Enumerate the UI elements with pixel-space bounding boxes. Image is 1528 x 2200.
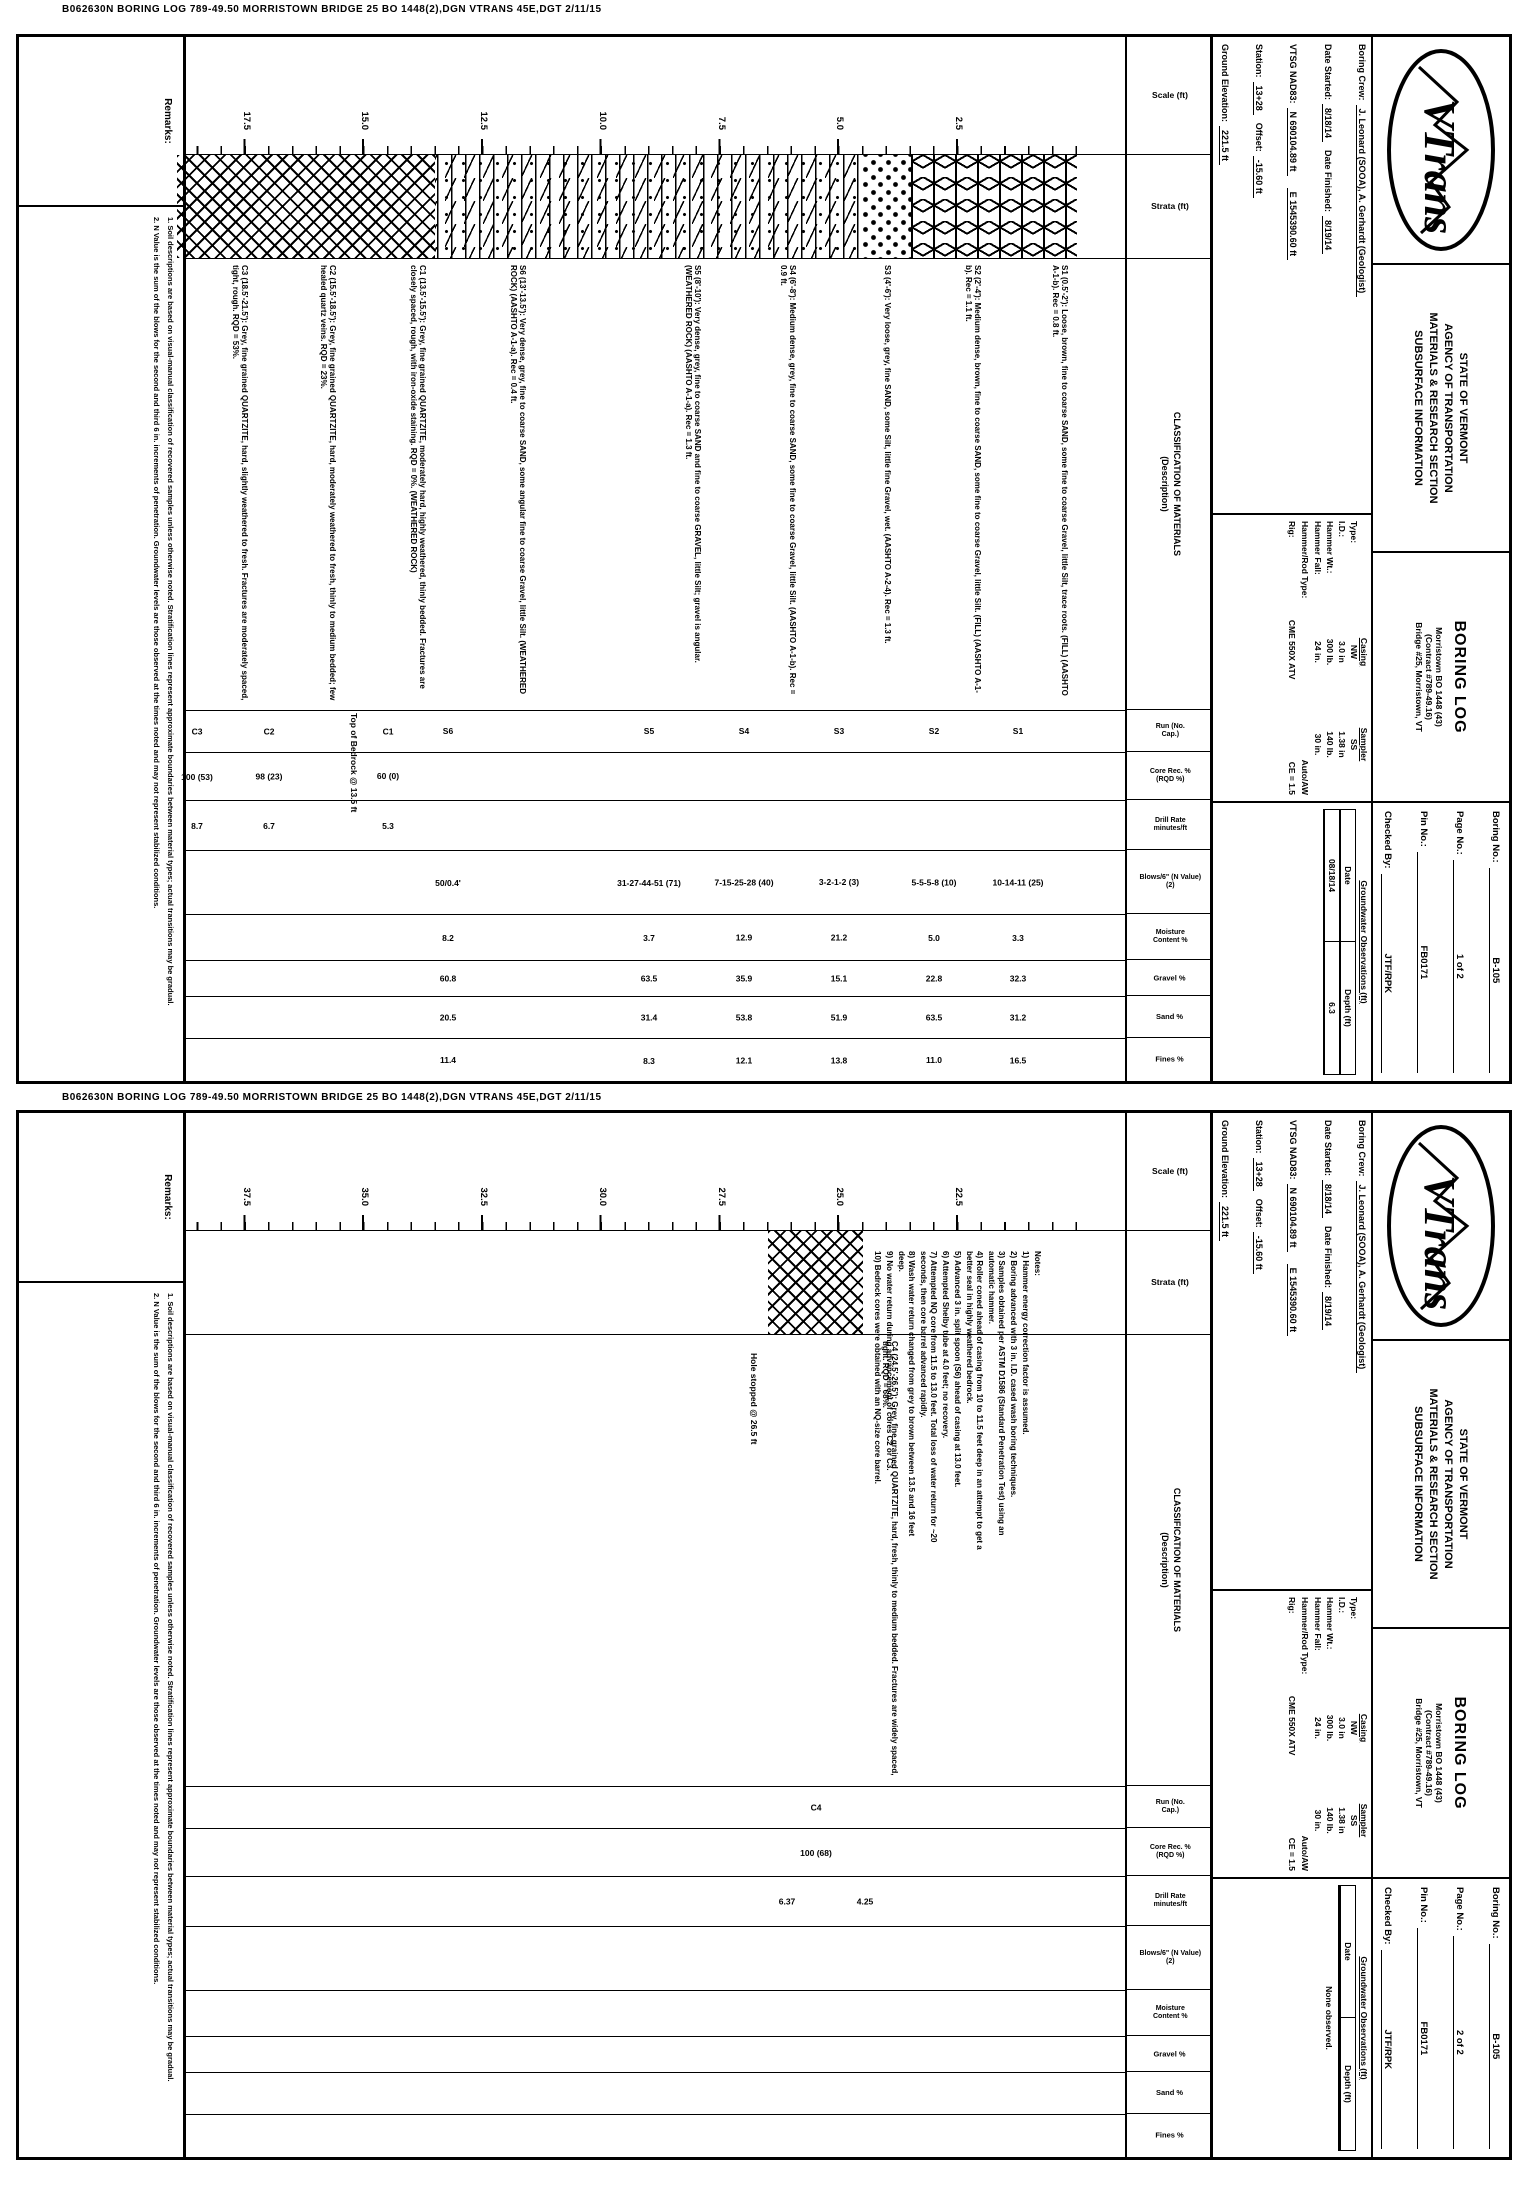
northing-value: N 690104.89 ft (1288, 108, 1299, 176)
date-finished-label: Date Finished: (1322, 1226, 1333, 1288)
cs-sampler-value: 30 in. (1313, 697, 1323, 792)
scale-column: 2.55.07.510.012.515.017.5 (183, 37, 1127, 155)
agency-line: SUBSURFACE INFORMATION (1413, 1406, 1425, 1562)
depth-label: 5.0 (834, 117, 845, 130)
fines-value: 13.8 (831, 1055, 848, 1065)
groundwater-block: Groundwater Observations (ft) Date Depth… (1213, 803, 1373, 1081)
project-line: (Contract #789-49.16) (1424, 1698, 1434, 1808)
boring-fields: Boring Crew:J. Leonard (SOOA), A. Gerhar… (1213, 37, 1373, 515)
title-row: VTrans STATE OF VERMONTAGENCY OF TRANSPO… (1371, 1113, 1509, 2157)
classification-header-line2: (Description) (1158, 412, 1170, 556)
boring-log-title: BORING LOG (1450, 1696, 1468, 1809)
moisture-column (183, 1991, 1127, 2037)
hammer-rod-value: Auto/AW (1300, 760, 1310, 795)
cs-row-label: Hammer Wt.: (1325, 521, 1335, 607)
boring-fields: Boring Crew:J. Leonard (SOOA), A. Gerhar… (1213, 1113, 1373, 1591)
sand-column: 31.263.551.953.831.420.5 (183, 997, 1127, 1039)
sheet-border: VTrans STATE OF VERMONTAGENCY OF TRANSPO… (16, 34, 1512, 1084)
boring-no-label: Boring No.: (1489, 1887, 1501, 1939)
note-line: 10) Bedrock cores were obtained with an … (872, 1251, 882, 1553)
station-value: 13+28 (1253, 1158, 1264, 1191)
depth-label: 12.5 (478, 112, 489, 131)
remarks-label: Remarks: (19, 37, 183, 207)
crew-label: Boring Crew: (1356, 44, 1367, 101)
gravel-column: 32.322.815.135.963.560.8 (183, 961, 1127, 997)
gravel-value: 63.5 (641, 973, 658, 983)
cs-casing-value: 24 in. (1313, 607, 1323, 697)
boring-log-title-block: BORING LOG Morristown BO 1448 (43)(Contr… (1373, 553, 1509, 803)
moisture-value: 21.2 (831, 932, 848, 942)
moisture-column-header: Moisture Content % (1148, 929, 1193, 944)
moisture-column-header: Moisture Content % (1148, 2005, 1193, 2020)
rig-value: CME 550X ATV (1287, 620, 1297, 680)
general-notes: Notes:1) Hammer energy correction factor… (870, 1251, 1042, 1553)
blows-column (183, 1927, 1127, 1991)
fines-column: 16.511.013.812.18.311.4 (183, 1039, 1127, 1082)
sheet-border: VTrans STATE OF VERMONTAGENCY OF TRANSPO… (16, 1110, 1512, 2160)
run-value: S3 (834, 727, 844, 737)
date-finished-value: 8/19/14 (1322, 1292, 1333, 1330)
note-line: 8) Wash water return changed from grey t… (896, 1251, 916, 1553)
hammer-rod-value: Auto/AW (1300, 1836, 1310, 1871)
boring-log-sheet-1: VTrans STATE OF VERMONTAGENCY OF TRANSPO… (16, 34, 1512, 1084)
project-line: Morristown BO 1448 (43) (1434, 1698, 1444, 1808)
agency-line: AGENCY OF TRANSPORTATION (1443, 323, 1455, 492)
cs-row-label: I.D.: (1337, 1597, 1347, 1683)
agency-line: MATERIALS & RESEARCH SECTION (1428, 312, 1440, 503)
depth-label: 10.0 (597, 112, 608, 131)
cs-casing-value: 3.0 in (1337, 607, 1347, 697)
ground-elevation-label: Ground Elevation: (1219, 44, 1230, 122)
cs-row-label: Type: (1349, 521, 1359, 607)
cs-row-label: Hammer Fall: (1313, 521, 1323, 607)
agency-line: MATERIALS & RESEARCH SECTION (1428, 1388, 1440, 1579)
note-line: 1) Hammer energy correction factor is as… (1020, 1251, 1030, 1553)
run-column: C4 (183, 1787, 1127, 1829)
plot-stamp-line-2: B062630N BORING LOG 789-49.50 MORRISTOWN… (62, 1092, 602, 1103)
page-no-label: Page No.: (1453, 1887, 1465, 1931)
drillrate-value: 8.7 (191, 820, 203, 830)
cs-casing-value: 300 lb. (1325, 607, 1335, 697)
material-description: S3 (4'-6'): Very loose, grey, fine SAND,… (883, 265, 892, 701)
gravel-column (183, 2037, 1127, 2073)
sand-value: 53.8 (736, 1012, 753, 1022)
sampler-header: Sampler (1359, 697, 1369, 792)
date-started-label: Date Started: (1322, 44, 1333, 100)
run-value: C4 (811, 1803, 822, 1813)
page-no-value: 2 of 2 (1453, 1936, 1465, 2149)
run-value: C1 (383, 727, 394, 737)
fields-row: Boring Crew:J. Leonard (SOOA), A. Gerhar… (1210, 37, 1373, 1081)
cs-row-label: Hammer Wt.: (1325, 1597, 1335, 1683)
depth-annotation: Hole stopped @ 26.5 ft (749, 1353, 759, 1444)
fines-column (183, 2115, 1127, 2158)
pin-no-label: Pin No.: (1417, 1887, 1429, 1923)
cs-casing-value: 24 in. (1313, 1683, 1323, 1773)
run-column-header: Run (No. Cap.) (1150, 723, 1191, 738)
offset-label: Offset: (1253, 123, 1264, 152)
boring-no-value: B-105 (1489, 1944, 1501, 2149)
casing-header: Casing (1359, 607, 1369, 697)
boring-no-value: B-105 (1489, 868, 1501, 1073)
groundwater-block: Groundwater Observations (ft) Date Depth… (1213, 1879, 1373, 2157)
remarks-line: 2. N Value is the sum of the blows for t… (151, 217, 161, 1071)
fines-value: 16.5 (1010, 1055, 1027, 1065)
depth-label: 17.5 (241, 112, 252, 131)
boring-log-sheet-2: VTrans STATE OF VERMONTAGENCY OF TRANSPO… (16, 1110, 1512, 2160)
station-label: Station: (1253, 44, 1264, 78)
boring-info-block: Boring No.:B-105 Page No.:2 of 2 Pin No.… (1373, 1879, 1509, 2157)
moisture-column: 3.35.021.212.93.78.2 (183, 915, 1127, 961)
run-value: C3 (192, 727, 203, 737)
rig-label: Rig: (1287, 521, 1297, 538)
moisture-value: 5.0 (928, 932, 940, 942)
fines-column-header: Fines % (1156, 2131, 1184, 2140)
material-description: C1 (13.5'-15.5'): Grey, fine grained QUA… (409, 265, 427, 701)
svg-text:VTrans: VTrans (1415, 99, 1464, 234)
agency-block: STATE OF VERMONTAGENCY OF TRANSPORTATION… (1373, 1341, 1509, 1629)
note-line: 2) Boring advanced with 3 in. I.D. cased… (1008, 1251, 1018, 1553)
moisture-value: 12.9 (736, 932, 753, 942)
scale-column: 22.525.027.530.032.535.037.5 (183, 1113, 1127, 1231)
blows-value: 7-15-25-28 (40) (714, 878, 773, 888)
depth-label: 2.5 (953, 117, 964, 130)
remarks-notes: 1. Soil descriptions are based on visual… (19, 1283, 183, 2157)
project-lines: Morristown BO 1448 (43)(Contract #789-49… (1414, 1698, 1444, 1808)
easting-value: E 1545390.60 ft (1288, 1264, 1299, 1337)
project-line: Bridge #25, Morristown, VT (1414, 622, 1424, 732)
blows-value: 31-27-44-51 (71) (617, 878, 681, 888)
strata-pattern-zone (435, 155, 863, 258)
fines-value: 8.3 (643, 1055, 655, 1065)
casing-sampler-rows: Type:NWSSI.D.:3.0 in1.38 inHammer Wt.:30… (1313, 1597, 1359, 1871)
page-no-label: Page No.: (1453, 811, 1465, 855)
cs-casing-value: NW (1349, 1683, 1359, 1773)
ruler-major-ticks (183, 139, 958, 154)
date-started-value: 8/18/14 (1322, 104, 1333, 142)
corerec-value: 98 (23) (256, 772, 283, 782)
gw-depth-value: 6.3 (1324, 942, 1339, 1074)
gravel-column-header: Gravel % (1154, 973, 1186, 982)
vtrans-logo: VTrans (1373, 1113, 1509, 1341)
log-body: 2.55.07.510.012.515.017.5 S1 (0.5'-2'): … (183, 37, 1127, 1081)
gravel-column-header: Gravel % (1154, 2049, 1186, 2058)
vtrans-logo-icon: VTrans (1385, 47, 1497, 253)
gw-date-value: 08/18/14 (1324, 810, 1339, 942)
agency-line: STATE OF VERMONT (1458, 353, 1470, 464)
fines-value: 11.0 (926, 1055, 942, 1065)
cs-row-label: I.D.: (1337, 521, 1347, 607)
vtrans-logo-icon: VTrans (1385, 1123, 1497, 1329)
sand-column-header: Sand % (1156, 2088, 1183, 2097)
depth-label: 27.5 (716, 1188, 727, 1207)
drillrate-column-header: Drill Rate minutes/ft (1146, 817, 1195, 832)
gw-note: None observed. (1324, 1885, 1334, 2151)
boring-log-title-block: BORING LOG Morristown BO 1448 (43)(Contr… (1373, 1629, 1509, 1879)
grid-label: VTSG NAD83: (1288, 44, 1299, 104)
remarks-line: 1. Soil descriptions are based on visual… (165, 217, 175, 1071)
gravel-value: 60.8 (440, 973, 457, 983)
material-description: S1 (0.5'-2'): Loose, brown, fine to coar… (1051, 265, 1069, 701)
note-line: 5) Advanced 3 in. split spoon (S6) ahead… (952, 1251, 962, 1553)
date-finished-label: Date Finished: (1322, 150, 1333, 212)
remarks-footer: Remarks: 1. Soil descriptions are based … (19, 37, 186, 1081)
casing-sampler-block: CasingSampler Type:NWSSI.D.:3.0 in1.38 i… (1213, 1591, 1373, 1879)
northing-value: N 690104.89 ft (1288, 1184, 1299, 1252)
ground-elevation-label: Ground Elevation: (1219, 1120, 1230, 1198)
material-description: C3 (18.5'-21.5'): Grey, fine grained QUA… (231, 265, 249, 701)
depth-label: 35.0 (359, 1188, 370, 1207)
strata-pattern-zone (768, 1231, 863, 1334)
gw-date-header: Date (1340, 1886, 1355, 2018)
cs-sampler-value: 140 lb. (1325, 1773, 1335, 1868)
strata-column (183, 155, 1127, 259)
drillrate-value: 4.25 (857, 1896, 874, 1906)
strata-pattern-zone (911, 155, 1077, 258)
offset-value: -15.60 ft (1253, 1232, 1264, 1274)
gw-rows (1338, 1885, 1339, 2151)
ground-elevation-value: 221.5 ft (1219, 1202, 1230, 1241)
strata-pattern-zone (177, 155, 435, 258)
boring-log-title: BORING LOG (1450, 620, 1468, 733)
run-value: S4 (739, 727, 749, 737)
note-line: 7) Attempted NQ core from 11.5 to 13.0 f… (918, 1251, 938, 1553)
cs-casing-value: NW (1349, 607, 1359, 697)
log-body: 22.525.027.530.032.535.037.5 C4 (24.5'-2… (183, 1113, 1127, 2157)
agency-line: STATE OF VERMONT (1458, 1429, 1470, 1540)
date-started-label: Date Started: (1322, 1120, 1333, 1176)
description-column: S1 (0.5'-2'): Loose, brown, fine to coar… (183, 259, 1127, 711)
sand-column (183, 2073, 1127, 2115)
sand-value: 63.5 (926, 1012, 943, 1022)
depth-label: 15.0 (359, 112, 370, 131)
remarks-notes: 1. Soil descriptions are based on visual… (19, 207, 183, 1081)
fines-column-header: Fines % (1156, 1055, 1184, 1064)
cs-sampler-value: 1.38 in (1337, 1773, 1347, 1868)
run-value: S5 (644, 727, 654, 737)
sand-column-header: Sand % (1156, 1012, 1183, 1021)
ce-value: CE = 1.5 (1287, 1838, 1297, 1871)
corerec-value: 100 (68) (800, 1847, 832, 1857)
run-value: S1 (1013, 727, 1023, 737)
date-started-value: 8/18/14 (1322, 1180, 1333, 1218)
run-value: C2 (264, 727, 275, 737)
groundwater-title: Groundwater Observations (ft) (1359, 809, 1369, 1075)
crew-value: J. Leonard (SOOA), A. Gerhardt (Geologis… (1356, 1181, 1367, 1374)
gw-depth-header: Depth (ft) (1340, 2018, 1355, 2150)
note-line: 9) No water return during advancement of… (884, 1251, 894, 1553)
gravel-value: 35.9 (736, 973, 753, 983)
project-lines: Morristown BO 1448 (43)(Contract #789-49… (1414, 622, 1444, 732)
cs-row-label: Type: (1349, 1597, 1359, 1683)
ground-elevation-value: 221.5 ft (1219, 126, 1230, 165)
blows-value: 3-2-1-2 (3) (819, 878, 859, 888)
hammer-rod-label: Hammer/Rod Type: (1300, 1597, 1310, 1674)
material-description: S2 (2'-4'): Medium dense, brown, fine to… (964, 265, 982, 701)
project-line: (Contract #789-49.16) (1424, 622, 1434, 732)
grid-label: VTSG NAD83: (1288, 1120, 1299, 1180)
boring-info-block: Boring No.:B-105 Page No.:1 of 2 Pin No.… (1373, 803, 1509, 1081)
gravel-value: 15.1 (831, 973, 848, 983)
blows-value: 50/0.4' (435, 878, 461, 888)
run-value: S2 (929, 727, 939, 737)
station-value: 13+28 (1253, 82, 1264, 115)
run-column-header: Run (No. Cap.) (1150, 1799, 1191, 1814)
moisture-value: 3.7 (643, 932, 655, 942)
corerec-column: 60 (0)98 (23)100 (53) (183, 753, 1127, 801)
hammer-rod-label: Hammer/Rod Type: (1300, 521, 1310, 598)
note-line: 3) Samples obtained per ASTM D1586 (Stan… (986, 1251, 1006, 1553)
moisture-value: 8.2 (442, 932, 454, 942)
agency-line: SUBSURFACE INFORMATION (1413, 330, 1425, 486)
depth-label: 22.5 (953, 1188, 964, 1207)
scale-column-header: Scale (ft) (1152, 90, 1188, 100)
depth-label: 37.5 (241, 1188, 252, 1207)
gw-rows: 08/18/146.3 (1323, 809, 1339, 1075)
blows-column-header: Blows/6" (N Value)(2) (1139, 1950, 1202, 1965)
remarks-line: 1. Soil descriptions are based on visual… (165, 1293, 175, 2147)
classification-header-line2: (Description) (1158, 1488, 1170, 1632)
column-headers: Scale (ft) Strata (ft) CLASSIFICATION OF… (1125, 37, 1213, 1081)
remarks-footer: Remarks: 1. Soil descriptions are based … (19, 1113, 186, 2157)
blows-value: 5-5-5-8 (10) (912, 877, 957, 887)
material-description: S6 (13'-13.5'): Very dense, grey, fine t… (509, 265, 527, 701)
rig-value: CME 550X ATV (1287, 1696, 1297, 1756)
corerec-column-header: Core Rec. % (RQD %) (1147, 1844, 1194, 1859)
agency-block: STATE OF VERMONTAGENCY OF TRANSPORTATION… (1373, 265, 1509, 553)
cs-sampler-value: SS (1349, 1773, 1359, 1868)
cs-sampler-value: 1.38 in (1337, 697, 1347, 792)
strata-column-header: Strata (ft) (1151, 201, 1189, 211)
drillrate-column-header: Drill Rate minutes/ft (1146, 1893, 1195, 1908)
run-column: S1S2S3S4S5S6C1C2C3 (183, 711, 1127, 753)
gw-depth-header: Depth (ft) (1340, 942, 1355, 1074)
run-value: S6 (443, 727, 453, 737)
corerec-value: 60 (0) (377, 772, 399, 782)
page-no-value: 1 of 2 (1453, 860, 1465, 1073)
gravel-value: 32.3 (1010, 973, 1027, 983)
drillrate-value: 6.37 (779, 1896, 796, 1906)
offset-label: Offset: (1253, 1199, 1264, 1228)
ruler-major-ticks (183, 1215, 958, 1230)
boring-no-label: Boring No.: (1489, 811, 1501, 863)
casing-sampler-rows: Type:NWSSI.D.:3.0 in1.38 inHammer Wt.:30… (1313, 521, 1359, 795)
casing-header: Casing (1359, 1683, 1369, 1773)
fines-value: 12.1 (736, 1055, 753, 1065)
corerec-column: 100 (68) (183, 1829, 1127, 1877)
easting-value: E 1545390.60 ft (1288, 188, 1299, 261)
blows-column: 10-14-11 (25)5-5-5-8 (10)3-2-1-2 (3)7-15… (183, 851, 1127, 915)
cs-sampler-value: 140 lb. (1325, 697, 1335, 792)
checked-by-label: Checked By: (1381, 811, 1393, 869)
cs-row-label: Hammer Fall: (1313, 1597, 1323, 1683)
sand-value: 31.4 (641, 1012, 658, 1022)
crew-value: J. Leonard (SOOA), A. Gerhardt (Geologis… (1356, 105, 1367, 298)
remarks-label: Remarks: (19, 1113, 183, 1283)
depth-annotation: Top of Bedrock @ 13.5 ft (349, 713, 359, 812)
classification-header-line1: CLASSIFICATION OF MATERIALS (1170, 412, 1182, 556)
strata-column-header: Strata (ft) (1151, 1277, 1189, 1287)
title-row: VTrans STATE OF VERMONTAGENCY OF TRANSPO… (1371, 37, 1509, 1081)
rig-label: Rig: (1287, 1597, 1297, 1614)
project-line: Morristown BO 1448 (43) (1434, 622, 1444, 732)
pin-no-value: FB0171 (1417, 1928, 1429, 2149)
fields-row: Boring Crew:J. Leonard (SOOA), A. Gerhar… (1210, 1113, 1373, 2157)
agency-line: AGENCY OF TRANSPORTATION (1443, 1399, 1455, 1568)
drillrate-column: 4.256.37 (183, 1877, 1127, 1927)
cs-sampler-value: SS (1349, 697, 1359, 792)
cs-casing-value: 3.0 in (1337, 1683, 1347, 1773)
checked-by-value: JTF/RPK (1381, 874, 1393, 1073)
date-finished-value: 8/19/14 (1322, 216, 1333, 254)
cs-sampler-value: 30 in. (1313, 1773, 1323, 1868)
drillrate-value: 6.7 (263, 820, 275, 830)
pin-no-label: Pin No.: (1417, 811, 1429, 847)
crew-label: Boring Crew: (1356, 1120, 1367, 1177)
gravel-value: 22.8 (926, 973, 943, 983)
scanned-boring-log-page: { "stamp": {"text": "B062630N BORING LOG… (0, 0, 1528, 2200)
gw-date-header: Date (1340, 810, 1355, 942)
drillrate-value: 5.3 (382, 820, 394, 830)
note-line: 6) Attempted Shelby tube at 4.0 feet; no… (940, 1251, 950, 1553)
sand-value: 20.5 (440, 1012, 457, 1022)
material-description: S5 (8'-10'): Very dense, grey, fine to c… (684, 265, 702, 701)
note-line: 4) Roller coned ahead of casing from 10 … (964, 1251, 984, 1553)
material-description: C2 (15.5'-18.5'): Grey, fine grained QUA… (319, 265, 337, 701)
checked-by-value: JTF/RPK (1381, 1950, 1393, 2149)
project-line: Bridge #25, Morristown, VT (1414, 1698, 1424, 1808)
classification-header-line1: CLASSIFICATION OF MATERIALS (1170, 1488, 1182, 1632)
moisture-value: 3.3 (1012, 932, 1024, 942)
depth-label: 32.5 (478, 1188, 489, 1207)
depth-label: 30.0 (597, 1188, 608, 1207)
svg-text:VTrans: VTrans (1415, 1175, 1464, 1310)
groundwater-title: Groundwater Observations (ft) (1359, 1885, 1369, 2151)
vtrans-logo: VTrans (1373, 37, 1509, 265)
sand-value: 31.2 (1010, 1012, 1027, 1022)
cs-casing-value: 300 lb. (1325, 1683, 1335, 1773)
ce-value: CE = 1.5 (1287, 762, 1297, 795)
strata-pattern-zone (863, 155, 911, 258)
station-label: Station: (1253, 1120, 1264, 1154)
column-headers: Scale (ft) Strata (ft) CLASSIFICATION OF… (1125, 1113, 1213, 2157)
material-description: S4 (6'-8'): Medium dense, grey, fine to … (779, 265, 797, 701)
depth-label: 7.5 (716, 117, 727, 130)
drillrate-column: 5.36.78.7 (183, 801, 1127, 851)
corerec-column-header: Core Rec. % (RQD %) (1147, 768, 1194, 783)
pin-no-value: FB0171 (1417, 852, 1429, 1073)
plot-stamp-line-1: B062630N BORING LOG 789-49.50 MORRISTOWN… (62, 4, 602, 15)
checked-by-label: Checked By: (1381, 1887, 1393, 1945)
fines-value: 11.4 (440, 1055, 456, 1065)
offset-value: -15.60 ft (1253, 156, 1264, 198)
scale-column-header: Scale (ft) (1152, 1166, 1188, 1176)
note-line: Notes: (1032, 1251, 1042, 1553)
blows-value: 10-14-11 (25) (992, 877, 1043, 887)
sand-value: 51.9 (831, 1012, 848, 1022)
sampler-header: Sampler (1359, 1773, 1369, 1868)
depth-label: 25.0 (834, 1188, 845, 1207)
remarks-line: 2. N Value is the sum of the blows for t… (151, 1293, 161, 2147)
blows-column-header: Blows/6" (N Value)(2) (1139, 874, 1202, 889)
casing-sampler-block: CasingSampler Type:NWSSI.D.:3.0 in1.38 i… (1213, 515, 1373, 803)
